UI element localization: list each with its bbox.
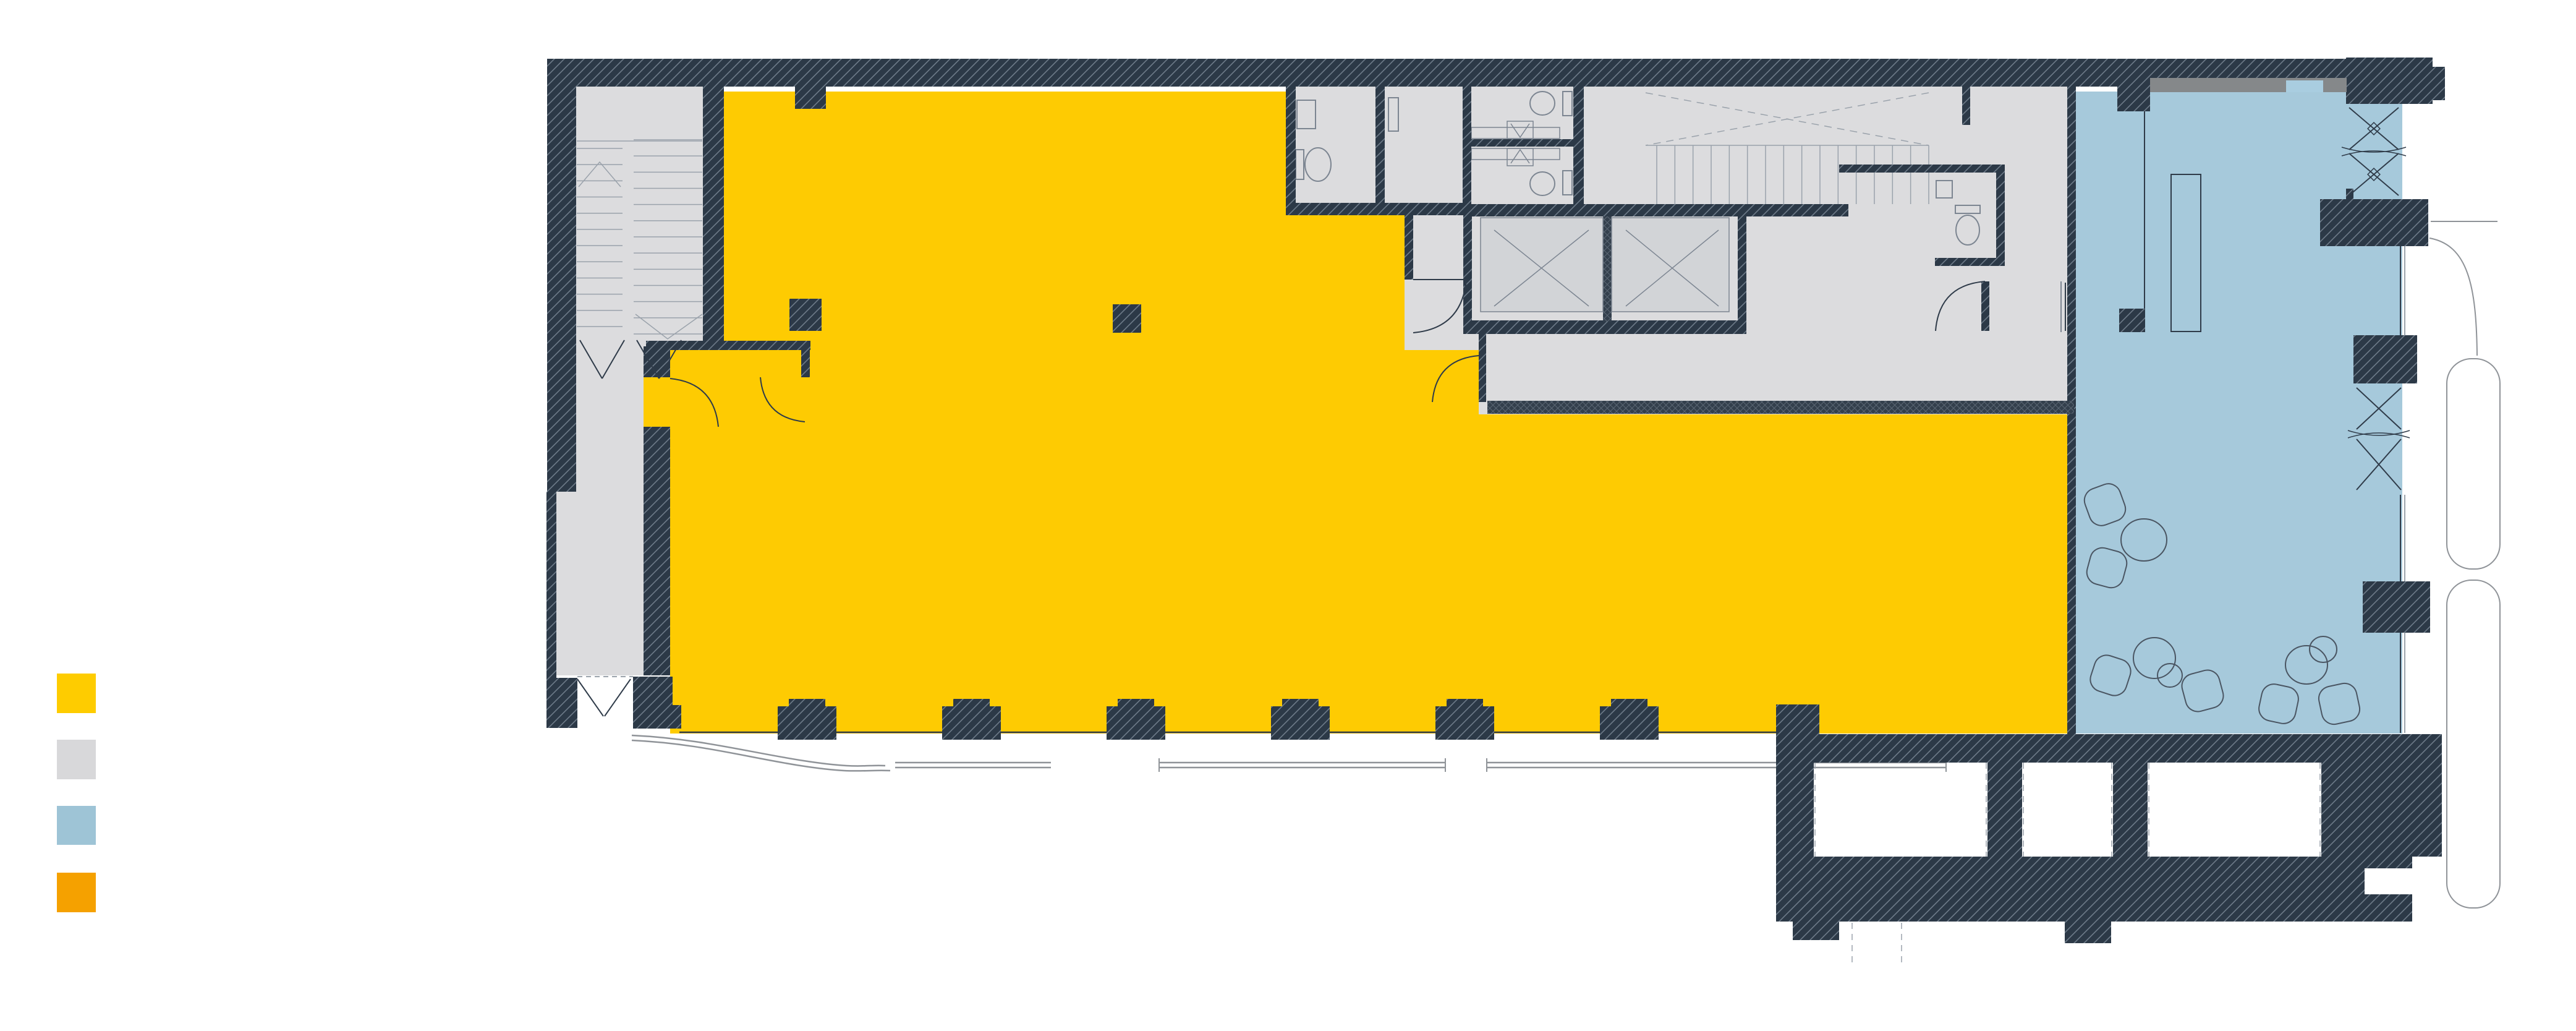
wall-step-north (2117, 87, 2150, 111)
wall-elevator-mid (1603, 216, 1612, 322)
zone-yellow-wrap (1289, 215, 1405, 350)
vault-pier (1987, 763, 2022, 857)
column-lobby (2119, 309, 2145, 332)
zone-yellow-south (1479, 414, 2068, 734)
pilaster-east-a-tab (2346, 189, 2353, 199)
zone-lobby-blue (2072, 92, 2402, 734)
wall-notch-north (795, 87, 826, 109)
pilaster-south (1600, 706, 1659, 740)
wall-corner-northeast (2346, 58, 2433, 104)
wall-elevator-east (1738, 216, 1746, 325)
exterior-planter-1 (2447, 359, 2500, 569)
floor-plan-page (0, 0, 2576, 1031)
vault-notch (2365, 868, 2412, 894)
wall-bathr-south (1935, 258, 2005, 266)
pilaster-south (778, 706, 836, 740)
vault-tab (2065, 922, 2111, 943)
wall-perimeter-west-upper (547, 59, 576, 492)
legend-swatch-zone-gray (57, 740, 96, 779)
vault-band-north (1776, 734, 2442, 763)
wall-room-partition (646, 341, 810, 350)
legend-swatch-zone-orange (57, 873, 96, 912)
zone-yellow-main (670, 350, 1479, 734)
column (1113, 304, 1141, 333)
vault-tab (1793, 922, 1839, 940)
pilaster-south (1271, 706, 1330, 740)
exterior-planter-2 (2447, 580, 2500, 908)
door-gap-floor (644, 377, 670, 427)
column (789, 299, 822, 331)
wall-entry-jamb-west (546, 678, 577, 728)
wall-bathc-east (1573, 87, 1584, 210)
wall-entry-jamb-foot (673, 705, 681, 729)
wall-elevator-west (1463, 204, 1472, 334)
wall-bathc-west (1463, 87, 1471, 210)
wall-corner-nub (2433, 67, 2445, 100)
wall-bath1-partition (1375, 87, 1385, 210)
wall-bathr-door-stub (1981, 281, 1989, 331)
wall-bathr-east (1996, 165, 2005, 266)
legend-swatch-zone-blue (57, 806, 96, 845)
pilaster-south-tab (953, 699, 990, 706)
vault-band-south (1776, 857, 2412, 922)
pilaster-east-a (2320, 199, 2428, 246)
storefront-window (2286, 80, 2323, 92)
wall-elevator-south (1463, 320, 1746, 334)
floor-plan-geometry (546, 58, 2500, 964)
exterior-canopy-curve (2429, 238, 2477, 356)
wall-perimeter-north (550, 59, 2346, 87)
wall-core-sill (1487, 401, 2074, 414)
wall-lobby-partition (2067, 332, 2076, 734)
wall-core-west (1286, 87, 1296, 214)
vault-pier (2113, 763, 2148, 857)
wall-corridor-core (1479, 334, 1486, 402)
wall-corridor-east-1 (644, 346, 670, 377)
wall-lobby-door-stub (1405, 215, 1413, 280)
elevator-cab (1481, 218, 1603, 312)
wall-bathr-north (1839, 165, 2005, 173)
wall-door-stub (801, 350, 810, 377)
elevator-cab (1612, 218, 1729, 312)
wall-stair-east (703, 87, 724, 346)
entry-door-leaf (605, 679, 631, 716)
sidewalk-curve-1 (632, 735, 885, 766)
legend-swatch-zone-yellow (57, 674, 96, 713)
wall-elevator-north (1463, 204, 1848, 216)
pilaster-south-tab (1611, 699, 1647, 706)
wall-core-east (2067, 75, 2076, 332)
pilaster-east-b (2353, 335, 2417, 383)
pilaster-south (942, 706, 1001, 740)
wall-bathc-divider (1463, 139, 1584, 147)
pilaster-south-tab (1447, 699, 1483, 706)
entry-door-leaf (577, 679, 603, 716)
pilaster-south-tab (1118, 699, 1154, 706)
vault-pier (1776, 763, 1814, 857)
floor-plan-svg (0, 0, 2576, 1031)
vault-pier-east (2321, 763, 2442, 857)
wall-entry-jamb-east (633, 677, 673, 729)
wall-stair-core-stub (1962, 87, 1970, 125)
wall-corridor-east-2 (644, 427, 670, 675)
pilaster-south-tab (1282, 699, 1319, 706)
pilaster-south (1107, 706, 1165, 740)
pilaster-south (1435, 706, 1494, 740)
pilaster-south-tab (789, 699, 825, 706)
zone-elevator-lobby (1413, 215, 1463, 335)
pilaster-east-c (2363, 581, 2430, 633)
